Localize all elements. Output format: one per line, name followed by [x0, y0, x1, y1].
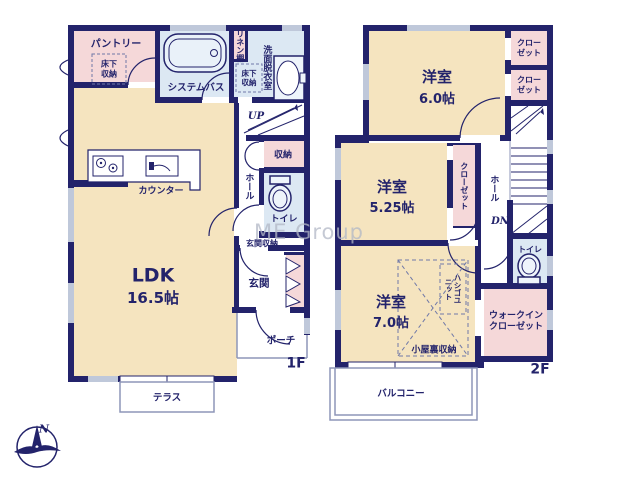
pantry-floor-storage-label: 床下収納: [99, 59, 119, 78]
hall1f-label: ホール: [243, 158, 254, 214]
attic-storage-label: 小屋裏収納: [411, 346, 456, 357]
ldk-size-label: 16.5帖: [127, 289, 179, 307]
ladder-unit-label: ハシゴユニット: [444, 273, 462, 305]
washbasin-icon: [274, 56, 306, 100]
entrance-label: 玄関: [249, 278, 270, 291]
toilet-icon-2f: [518, 254, 540, 284]
floor1-label: 1F: [286, 356, 305, 373]
terrace-label: テラス: [153, 392, 181, 403]
closet1-label: クローゼット: [514, 38, 544, 57]
ldk-room-left: [74, 85, 158, 376]
floor2-label: 2F: [530, 362, 549, 379]
hall2f-label: ホール: [488, 160, 499, 216]
toilet1f-label: トイレ: [270, 215, 297, 226]
closet2-label: クローゼット: [514, 75, 544, 94]
stove-icon: [93, 156, 123, 176]
bedroom1-size-label: 6.0帖: [419, 92, 455, 108]
compass-north-label: N: [39, 422, 49, 435]
washroom-label: 洗面脱衣室: [261, 37, 272, 97]
walk-in-closet-label: ウォークインクローゼット: [487, 311, 545, 333]
bedroom3-size-label: 7.0帖: [373, 316, 409, 332]
linen-shelf-label: リネン棚: [235, 29, 245, 63]
toilet-icon-1f: [269, 176, 291, 211]
bedroom3-label: 洋室: [376, 293, 406, 311]
compass-icon: [14, 425, 61, 467]
washroom-floor-storage-label: 床下収納: [240, 69, 259, 87]
stairs-dn-2f: [510, 106, 547, 238]
entrance-storage-label: 玄関収納: [246, 239, 278, 249]
bedroom2-size-label: 5.25帖: [369, 201, 414, 217]
bathtub-icon: [164, 34, 226, 72]
toilet2f-label: トイレ: [518, 245, 542, 255]
stairs-up-label: UP: [248, 111, 264, 123]
stairs-dn-label: DN: [491, 216, 509, 228]
storage1f-label: 収納: [274, 151, 292, 162]
balcony-window: [348, 362, 442, 368]
bedroom2-label: 洋室: [377, 178, 407, 196]
counter-label: カウンター: [138, 187, 183, 198]
floor-plan-canvas: ME Group パントリー 床下収納 システムバス リネン棚 洗面脱衣室 床下…: [0, 0, 640, 480]
balcony-label: バルコニー: [377, 388, 424, 399]
ldk-label: LDK: [132, 265, 175, 288]
kitchen-sink-icon: [146, 156, 178, 176]
terrace-window: [120, 376, 214, 382]
bath-label: システムバス: [168, 82, 225, 93]
bedroom1-label: 洋室: [422, 68, 452, 86]
porch-label: ポーチ: [267, 335, 296, 346]
closet3-label: クローゼット: [459, 147, 469, 225]
ldk-room-right: [158, 100, 237, 376]
pantry-label: パントリー: [91, 39, 142, 51]
